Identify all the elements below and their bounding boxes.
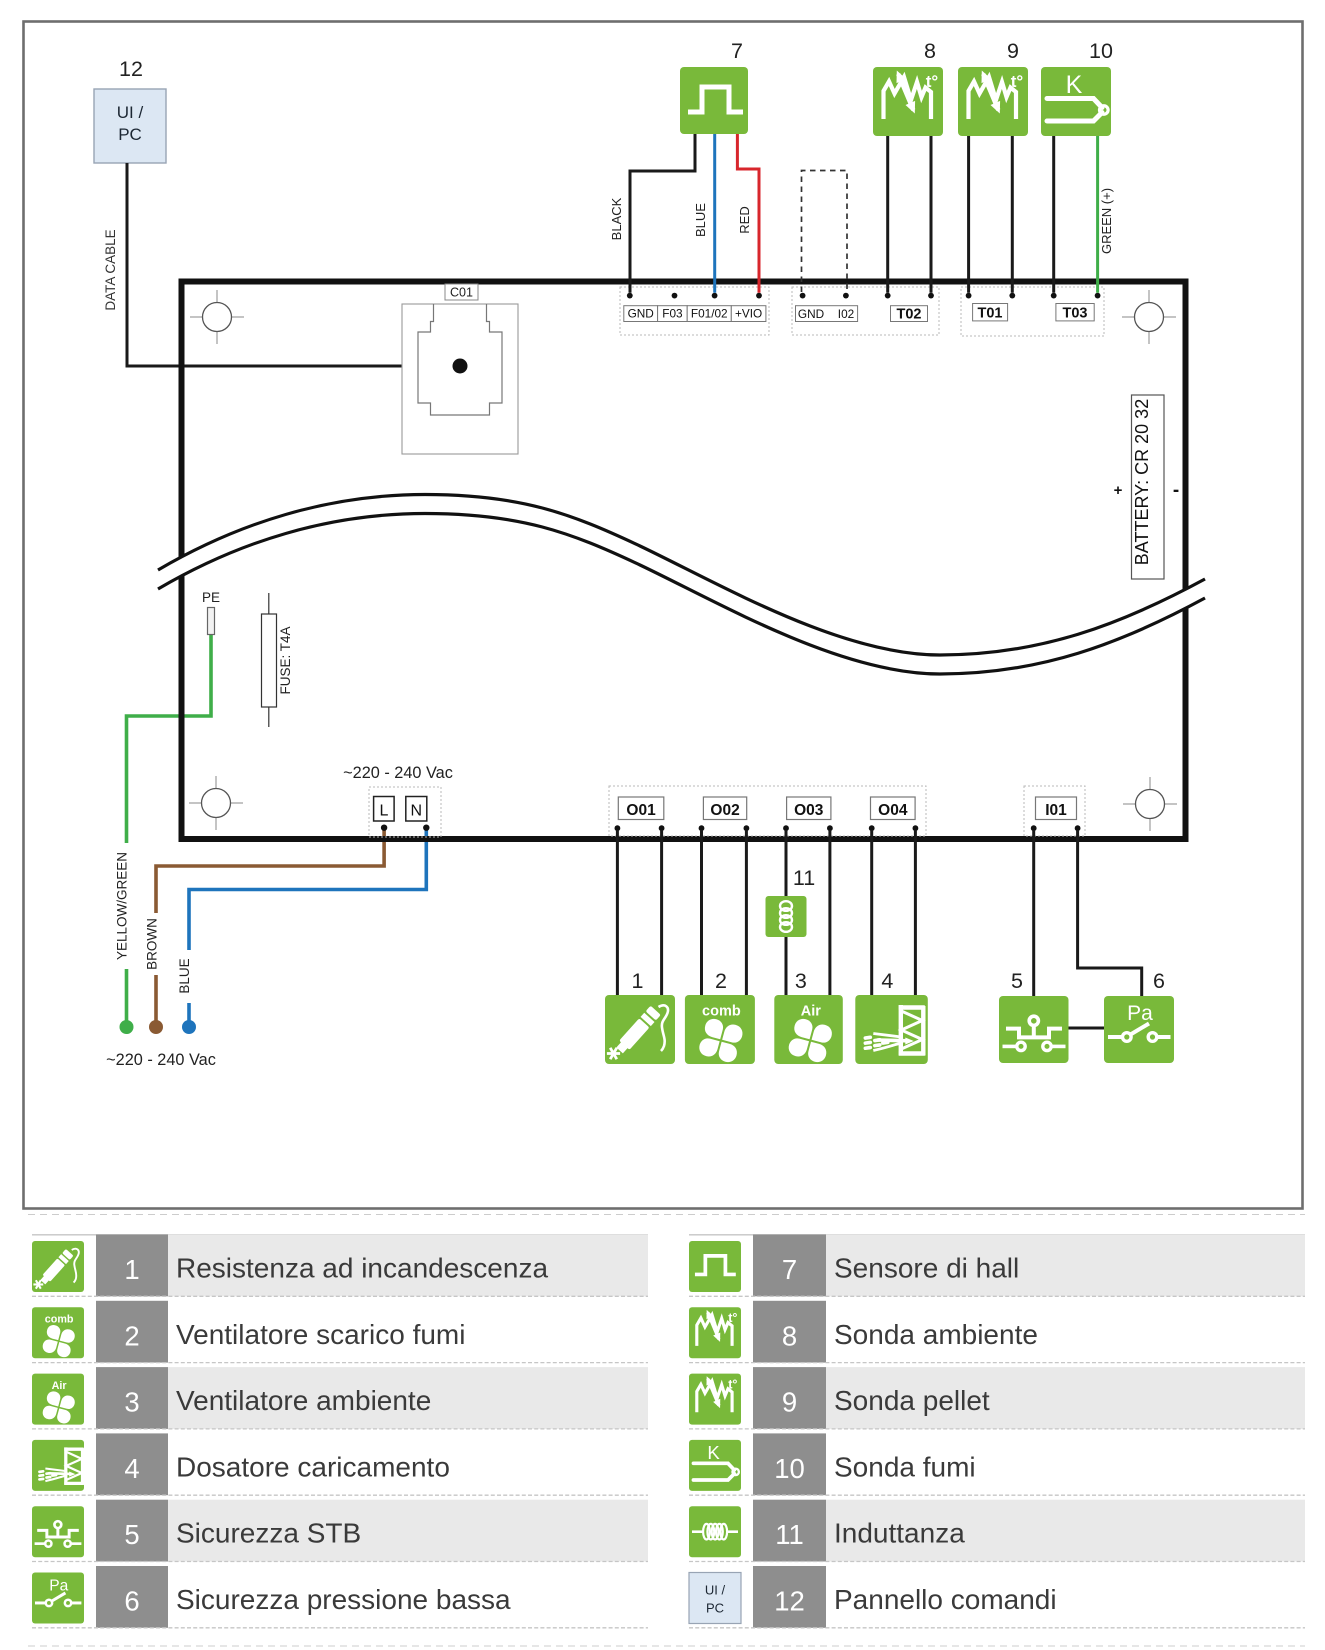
svg-text:12: 12 [119, 57, 143, 81]
svg-text:T02: T02 [897, 307, 922, 323]
svg-text:Ventilatore ambiente: Ventilatore ambiente [176, 1385, 431, 1416]
svg-text:PC: PC [118, 125, 142, 144]
svg-text:5: 5 [1011, 969, 1023, 993]
svg-text:PC: PC [706, 1601, 724, 1616]
svg-text:YELLOW/GREEN: YELLOW/GREEN [115, 852, 130, 960]
svg-text:Resistenza ad incandescenza: Resistenza ad incandescenza [176, 1253, 548, 1284]
svg-text:Air: Air [52, 1380, 68, 1392]
svg-text:Ventilatore scarico fumi: Ventilatore scarico fumi [176, 1319, 465, 1350]
svg-text:BLUE: BLUE [693, 203, 708, 237]
svg-text:F01/02: F01/02 [691, 306, 728, 320]
svg-text:BROWN: BROWN [145, 918, 160, 970]
svg-text:comb: comb [45, 1314, 74, 1326]
svg-text:GREEN (+): GREEN (+) [1099, 188, 1114, 254]
svg-text:~220 - 240 Vac: ~220 - 240 Vac [343, 764, 453, 782]
svg-text:9: 9 [1007, 39, 1019, 63]
svg-text:t°: t° [926, 72, 939, 91]
svg-text:11: 11 [793, 866, 815, 890]
svg-text:3: 3 [124, 1387, 139, 1418]
svg-text:2: 2 [124, 1320, 139, 1351]
svg-text:BLACK: BLACK [609, 197, 624, 240]
svg-text:1: 1 [124, 1254, 139, 1285]
svg-text:O04: O04 [878, 802, 908, 819]
svg-text:BATTERY: CR 20 32: BATTERY: CR 20 32 [1132, 399, 1152, 565]
svg-text:6: 6 [124, 1586, 139, 1617]
svg-text:RED: RED [737, 206, 752, 233]
svg-text:-: - [1173, 480, 1179, 501]
svg-text:N: N [411, 803, 423, 820]
svg-text:12: 12 [774, 1586, 805, 1617]
svg-text:O03: O03 [794, 802, 824, 819]
svg-text:5: 5 [124, 1519, 139, 1550]
svg-text:8: 8 [924, 39, 936, 63]
svg-text:Sicurezza STB: Sicurezza STB [176, 1518, 361, 1549]
svg-text:8: 8 [782, 1320, 797, 1351]
svg-text:F03: F03 [662, 306, 683, 320]
svg-text:t°: t° [1011, 72, 1024, 91]
svg-text:t°: t° [728, 1377, 737, 1391]
svg-text:UI /: UI / [117, 103, 144, 122]
svg-text:Pa: Pa [1127, 1002, 1153, 1025]
svg-text:L: L [379, 803, 388, 820]
svg-text:10: 10 [774, 1453, 805, 1484]
svg-text:~220 - 240 Vac: ~220 - 240 Vac [106, 1051, 216, 1069]
svg-text:C01: C01 [450, 286, 473, 300]
svg-text:t°: t° [728, 1311, 737, 1325]
svg-text:11: 11 [775, 1519, 804, 1550]
svg-text:Sensore di hall: Sensore di hall [834, 1253, 1019, 1284]
svg-text:O01: O01 [626, 802, 656, 819]
svg-text:7: 7 [731, 39, 743, 63]
svg-text:9: 9 [782, 1387, 797, 1418]
svg-text:BLUE: BLUE [177, 958, 192, 993]
svg-text:GND: GND [798, 307, 824, 321]
svg-text:2: 2 [715, 969, 727, 993]
svg-text:Dosatore caricamento: Dosatore caricamento [176, 1451, 450, 1482]
svg-text:4: 4 [124, 1453, 139, 1484]
svg-text:6: 6 [1153, 969, 1165, 993]
svg-text:I01: I01 [1045, 802, 1067, 819]
svg-text:FUSE: T4A: FUSE: T4A [278, 626, 293, 694]
svg-text:Sicurezza pressione bassa: Sicurezza pressione bassa [176, 1584, 511, 1615]
svg-text:Pannello comandi: Pannello comandi [834, 1584, 1057, 1615]
svg-text:+VIO: +VIO [735, 306, 762, 320]
svg-text:Pa: Pa [49, 1577, 68, 1594]
svg-text:Air: Air [801, 1004, 822, 1020]
svg-text:3: 3 [795, 969, 807, 993]
svg-text:PE: PE [202, 590, 220, 605]
svg-text:GND: GND [628, 306, 654, 320]
svg-text:comb: comb [702, 1004, 741, 1020]
svg-text:Induttanza: Induttanza [834, 1518, 965, 1549]
svg-text:DATA CABLE: DATA CABLE [103, 229, 118, 310]
svg-text:4: 4 [881, 969, 893, 993]
svg-text:Sonda fumi: Sonda fumi [834, 1451, 976, 1482]
svg-text:1: 1 [632, 969, 644, 993]
svg-text:T03: T03 [1063, 306, 1088, 322]
svg-text:Sonda ambiente: Sonda ambiente [834, 1319, 1038, 1350]
svg-text:I02: I02 [838, 307, 854, 321]
svg-text:K: K [1066, 71, 1083, 99]
svg-text:10: 10 [1089, 39, 1113, 63]
svg-text:T01: T01 [978, 306, 1003, 322]
svg-text:UI /: UI / [705, 1583, 726, 1598]
svg-text:7: 7 [782, 1254, 797, 1285]
svg-text:K: K [707, 1442, 720, 1463]
svg-text:Sonda pellet: Sonda pellet [834, 1385, 990, 1416]
svg-text:O02: O02 [710, 802, 739, 819]
svg-text:+: + [1114, 482, 1123, 499]
